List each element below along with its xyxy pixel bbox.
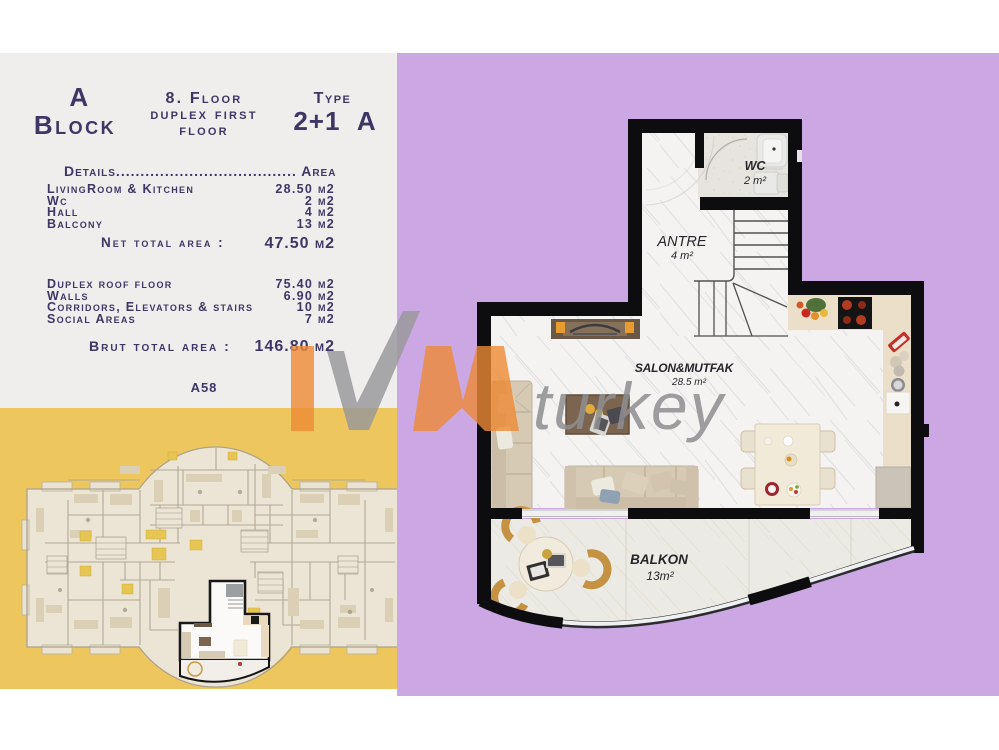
svg-text:4 m²: 4 m² [671,250,693,262]
svg-text:13m²: 13m² [646,569,674,583]
svg-text:turkey: turkey [533,369,727,443]
svg-text:2 m²: 2 m² [743,175,766,187]
svg-text:WC: WC [745,159,767,173]
svg-text:ANTRE: ANTRE [656,234,706,250]
svg-text:BALKON: BALKON [630,552,688,567]
